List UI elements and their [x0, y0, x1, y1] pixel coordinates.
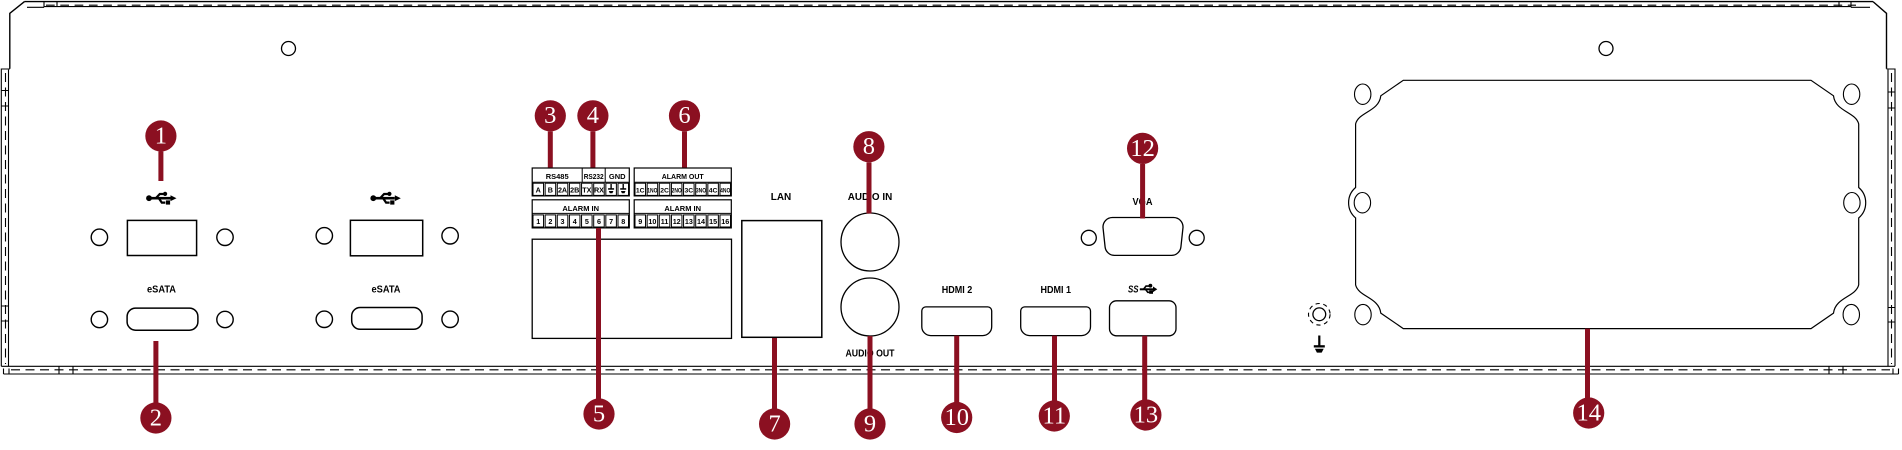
- svg-text:11: 11: [661, 217, 669, 226]
- svg-text:GND: GND: [609, 172, 626, 181]
- svg-text:eSATA: eSATA: [372, 284, 401, 295]
- svg-text:ALARM IN: ALARM IN: [664, 204, 701, 213]
- svg-text:7: 7: [609, 217, 613, 226]
- svg-text:RS232: RS232: [584, 172, 604, 181]
- svg-text:8: 8: [863, 133, 875, 160]
- svg-text:A: A: [536, 185, 541, 194]
- svg-text:9: 9: [864, 410, 876, 437]
- svg-text:1: 1: [155, 122, 167, 149]
- svg-text:4NO: 4NO: [720, 187, 730, 194]
- svg-text:12: 12: [1130, 135, 1155, 162]
- svg-text:ALARM IN: ALARM IN: [562, 204, 599, 213]
- svg-text:4: 4: [573, 217, 577, 226]
- svg-text:10: 10: [648, 217, 656, 226]
- svg-text:16: 16: [721, 217, 729, 226]
- svg-text:B: B: [548, 185, 553, 194]
- svg-text:11: 11: [1043, 402, 1067, 429]
- svg-text:3: 3: [561, 217, 565, 226]
- svg-text:6: 6: [678, 102, 690, 129]
- svg-text:TX: TX: [582, 185, 591, 194]
- svg-text:13: 13: [685, 217, 693, 226]
- svg-text:2: 2: [548, 217, 552, 226]
- svg-text:1C: 1C: [636, 187, 645, 194]
- svg-text:3C: 3C: [684, 187, 693, 194]
- svg-text:10: 10: [944, 404, 969, 431]
- svg-text:2: 2: [150, 404, 162, 431]
- svg-text:2C: 2C: [660, 187, 669, 194]
- svg-text:14: 14: [1576, 399, 1601, 426]
- svg-text:HDMI 1: HDMI 1: [1041, 285, 1072, 296]
- svg-text:SS: SS: [1128, 285, 1139, 296]
- svg-text:RS485: RS485: [546, 172, 569, 181]
- svg-text:5: 5: [593, 400, 605, 427]
- svg-text:6: 6: [597, 217, 601, 226]
- svg-text:2A: 2A: [558, 185, 567, 194]
- svg-text:13: 13: [1134, 401, 1159, 428]
- svg-text:LAN: LAN: [771, 192, 792, 203]
- svg-text:2B: 2B: [570, 185, 579, 194]
- svg-text:8: 8: [621, 217, 625, 226]
- svg-text:eSATA: eSATA: [147, 284, 176, 295]
- svg-text:3: 3: [544, 102, 556, 129]
- svg-text:RX: RX: [594, 185, 604, 194]
- svg-text:1: 1: [536, 217, 540, 226]
- svg-text:3NO: 3NO: [696, 187, 706, 194]
- svg-text:2NO: 2NO: [672, 187, 682, 194]
- svg-text:7: 7: [768, 410, 780, 437]
- svg-text:9: 9: [638, 217, 642, 226]
- svg-text:5: 5: [585, 217, 589, 226]
- svg-text:14: 14: [697, 217, 705, 226]
- svg-text:1NO: 1NO: [647, 187, 657, 194]
- svg-text:HDMI 2: HDMI 2: [942, 285, 973, 296]
- svg-text:4C: 4C: [709, 187, 718, 194]
- svg-text:12: 12: [673, 217, 681, 226]
- svg-text:4: 4: [587, 102, 599, 129]
- svg-text:15: 15: [709, 217, 717, 226]
- svg-text:ALARM OUT: ALARM OUT: [662, 172, 704, 181]
